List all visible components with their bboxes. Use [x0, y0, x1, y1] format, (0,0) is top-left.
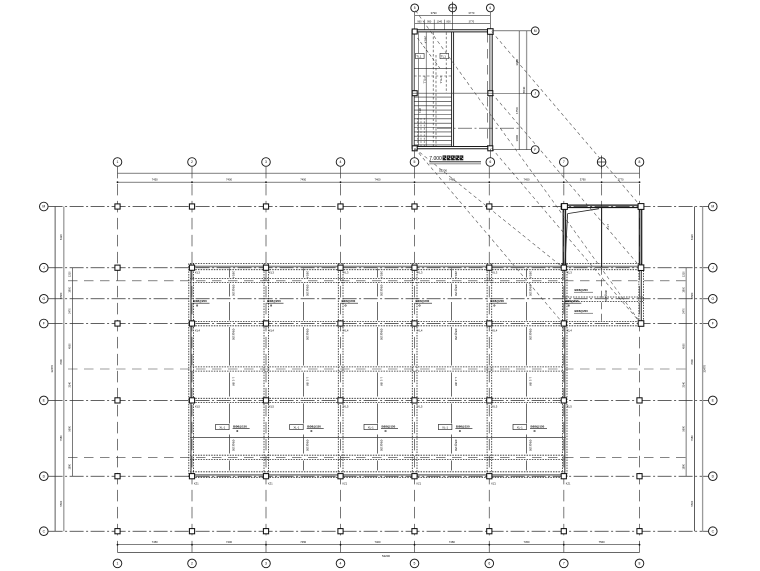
svg-text:1310: 1310	[69, 271, 72, 277]
svg-text:1040: 1040	[437, 20, 443, 23]
svg-text:800: 800	[447, 20, 452, 23]
svg-text:KL3: KL3	[195, 271, 200, 275]
svg-text:L-1 Φ8: L-1 Φ8	[305, 377, 309, 386]
svg-text:BΦ8@200: BΦ8@200	[267, 299, 281, 303]
svg-text:7690: 7690	[690, 359, 694, 365]
svg-text:BΦ8@200: BΦ8@200	[565, 299, 579, 303]
svg-text:2: 2	[191, 562, 193, 566]
svg-text:TL1: TL1	[441, 54, 447, 58]
svg-text:3770: 3770	[469, 20, 475, 23]
svg-text:LT1: LT1	[606, 224, 610, 229]
svg-text:Φ8@150: Φ8@150	[231, 440, 235, 452]
svg-text:52200: 52200	[382, 554, 390, 558]
svg-text:KL5: KL5	[418, 405, 423, 409]
svg-text:Φ8@150: Φ8@150	[454, 285, 458, 297]
svg-text:1000: 1000	[515, 135, 519, 142]
svg-text:5500: 5500	[690, 500, 694, 506]
svg-text:Φ8@150: Φ8@150	[529, 285, 533, 297]
svg-text:7690: 7690	[59, 359, 63, 365]
svg-text:2Φ14: 2Φ14	[454, 271, 458, 279]
svg-text:BΦ8@200: BΦ8@200	[342, 299, 356, 303]
svg-text:KZ1: KZ1	[194, 483, 199, 486]
svg-text:TL1: TL1	[416, 54, 422, 58]
svg-text:Φ8@150: Φ8@150	[380, 329, 384, 341]
svg-text:3080: 3080	[515, 59, 519, 66]
svg-text:Φ8@150: Φ8@150	[231, 329, 235, 341]
svg-text:1800: 1800	[69, 286, 72, 292]
svg-text:7450: 7450	[152, 540, 158, 544]
svg-text:5690: 5690	[69, 425, 72, 431]
svg-text:7: 7	[563, 160, 565, 164]
svg-text:KL4: KL4	[344, 329, 349, 333]
svg-text:BΦ8@150: BΦ8@150	[531, 424, 545, 428]
svg-text:PTL1: PTL1	[422, 77, 426, 85]
svg-text:Φ8@150: Φ8@150	[604, 290, 608, 302]
svg-text:KL3: KL3	[269, 271, 274, 275]
svg-text:KZ1: KZ1	[343, 483, 348, 486]
svg-text:7450: 7450	[524, 540, 530, 544]
svg-text:M: M	[534, 29, 537, 33]
svg-text:BΦ8@200: BΦ8@200	[193, 299, 207, 303]
svg-text:KL3: KL3	[418, 271, 423, 275]
svg-text:7450: 7450	[152, 178, 158, 182]
svg-text:3770: 3770	[618, 178, 624, 182]
svg-text:Φ8@150: Φ8@150	[305, 440, 309, 452]
svg-text:5: 5	[414, 160, 416, 164]
svg-text:4550: 4550	[69, 343, 72, 349]
svg-text:KZ1: KZ1	[491, 483, 496, 486]
svg-text:4550: 4550	[682, 343, 685, 349]
svg-text:7580: 7580	[59, 435, 63, 441]
svg-text:PTL1: PTL1	[439, 77, 443, 85]
svg-text:F: F	[712, 322, 714, 326]
svg-text:7450: 7450	[300, 178, 306, 182]
svg-text:KL5: KL5	[195, 405, 200, 409]
svg-text:1890: 1890	[69, 463, 72, 469]
svg-text:7400: 7400	[375, 178, 381, 182]
svg-text:KL4: KL4	[418, 329, 423, 333]
svg-text:Φ8@150: Φ8@150	[380, 285, 384, 297]
svg-text:7400: 7400	[375, 540, 381, 544]
svg-text:Φ8@150: Φ8@150	[305, 329, 309, 341]
svg-text:7: 7	[563, 562, 565, 566]
svg-text:5580: 5580	[690, 292, 694, 298]
svg-text:6: 6	[489, 6, 491, 10]
svg-text:7480: 7480	[449, 178, 455, 182]
svg-text:G: G	[42, 297, 45, 301]
svg-text:5: 5	[414, 562, 416, 566]
svg-text:8: 8	[639, 562, 641, 566]
svg-text:3790: 3790	[580, 178, 586, 182]
svg-text:Φ8@150: Φ8@150	[305, 285, 309, 297]
svg-text:BΦ8@150: BΦ8@150	[456, 424, 470, 428]
svg-text:7480: 7480	[449, 540, 455, 544]
svg-text:L-1 Φ8: L-1 Φ8	[529, 377, 533, 386]
svg-text:7.000: 7.000	[429, 156, 442, 162]
svg-text:BΦ8@150: BΦ8@150	[233, 424, 247, 428]
svg-text:5580: 5580	[59, 292, 63, 298]
svg-text:7560: 7560	[599, 540, 605, 544]
svg-text:XL-1: XL-1	[517, 426, 523, 430]
svg-text:KL4: KL4	[269, 329, 274, 333]
svg-text:1: 1	[117, 160, 119, 164]
svg-text:2Φ14: 2Φ14	[231, 271, 235, 279]
svg-text:1800: 1800	[682, 286, 685, 292]
svg-text:2Φ14: 2Φ14	[305, 271, 309, 279]
svg-text:KL3: KL3	[492, 271, 497, 275]
svg-text:XL-1: XL-1	[368, 426, 374, 430]
svg-text:BΦ8@150: BΦ8@150	[307, 424, 321, 428]
svg-text:2: 2	[191, 160, 193, 164]
svg-text:6: 6	[488, 562, 490, 566]
svg-text:8: 8	[639, 160, 641, 164]
svg-text:7400: 7400	[226, 540, 232, 544]
svg-text:XL-1: XL-1	[442, 426, 448, 430]
svg-text:F: F	[534, 148, 536, 152]
svg-text:7450: 7450	[524, 178, 530, 182]
svg-text:Φ8@150: Φ8@150	[529, 440, 533, 452]
svg-text:5840: 5840	[522, 86, 526, 93]
svg-text:KL5: KL5	[269, 405, 274, 409]
svg-text:7580: 7580	[690, 435, 694, 441]
svg-text:XL-1: XL-1	[219, 426, 225, 430]
svg-text:J: J	[43, 266, 45, 270]
svg-text:BΦ8@200: BΦ8@200	[490, 299, 504, 303]
svg-text:G: G	[711, 297, 714, 301]
svg-text:KL5: KL5	[567, 405, 572, 409]
svg-text:M: M	[42, 205, 45, 209]
svg-text:KL3: KL3	[344, 271, 349, 275]
svg-text:960: 960	[417, 20, 422, 23]
svg-text:2470: 2470	[682, 308, 685, 314]
svg-text:L-1 Φ8: L-1 Φ8	[231, 377, 235, 386]
svg-text:L-1 Φ8: L-1 Φ8	[454, 377, 458, 386]
svg-text:M: M	[711, 205, 714, 209]
svg-text:3140: 3140	[69, 381, 72, 387]
svg-text:3140: 3140	[682, 381, 685, 387]
svg-text:7400: 7400	[226, 178, 232, 182]
svg-text:Φ8@150: Φ8@150	[454, 440, 458, 452]
svg-text:AT1: AT1	[418, 108, 422, 113]
svg-text:6120: 6120	[59, 234, 63, 240]
svg-text:Φ8@150: Φ8@150	[529, 329, 533, 341]
svg-text:KL4: KL4	[492, 329, 497, 333]
svg-text:BΦ8@200: BΦ8@200	[575, 288, 589, 292]
svg-text:KL4: KL4	[567, 329, 572, 333]
svg-text:4: 4	[340, 160, 342, 164]
svg-text:KZ1: KZ1	[268, 483, 273, 486]
svg-text:3770: 3770	[468, 11, 474, 15]
svg-text:XL-1: XL-1	[293, 426, 299, 430]
svg-text:BΦ8@150: BΦ8@150	[382, 424, 396, 428]
svg-text:990: 990	[427, 20, 432, 23]
svg-text:3790: 3790	[431, 11, 437, 15]
svg-text:2Φ14: 2Φ14	[380, 271, 384, 279]
svg-text:7450: 7450	[300, 540, 306, 544]
svg-text:3: 3	[265, 160, 267, 164]
svg-text:2Φ14: 2Φ14	[424, 36, 428, 44]
svg-text:F: F	[43, 322, 45, 326]
svg-text:1750: 1750	[515, 107, 519, 114]
svg-text:2Φ14: 2Φ14	[529, 271, 533, 279]
svg-text:52200: 52200	[439, 169, 447, 173]
svg-text:KL3: KL3	[567, 271, 572, 275]
svg-text:KL4: KL4	[195, 329, 200, 333]
svg-text:KZ1: KZ1	[417, 483, 422, 486]
svg-text:KL5: KL5	[344, 405, 349, 409]
svg-text:1890: 1890	[682, 463, 685, 469]
svg-text:32470: 32470	[50, 365, 54, 373]
svg-text:BΦ8@200: BΦ8@200	[575, 309, 589, 313]
svg-text:Φ8@150: Φ8@150	[231, 285, 235, 297]
svg-text:1: 1	[117, 562, 119, 566]
svg-text:5500: 5500	[59, 500, 63, 506]
svg-text:BΦ8@200: BΦ8@200	[416, 299, 430, 303]
svg-text:KZ1: KZ1	[566, 483, 571, 486]
svg-text:5690: 5690	[682, 425, 685, 431]
svg-text:J: J	[712, 266, 714, 270]
svg-text:1310: 1310	[682, 271, 685, 277]
svg-text:5: 5	[414, 6, 416, 10]
svg-text:2470: 2470	[69, 308, 72, 314]
svg-text:Φ8@150: Φ8@150	[454, 329, 458, 341]
svg-text:4: 4	[340, 562, 342, 566]
svg-text:KL5: KL5	[492, 405, 497, 409]
svg-text:Φ8@150: Φ8@150	[380, 440, 384, 452]
svg-text:6120: 6120	[690, 234, 694, 240]
svg-text:3: 3	[265, 562, 267, 566]
svg-text:6: 6	[489, 160, 491, 164]
svg-text:32470: 32470	[703, 365, 707, 373]
svg-text:L-1 Φ8: L-1 Φ8	[380, 377, 384, 386]
